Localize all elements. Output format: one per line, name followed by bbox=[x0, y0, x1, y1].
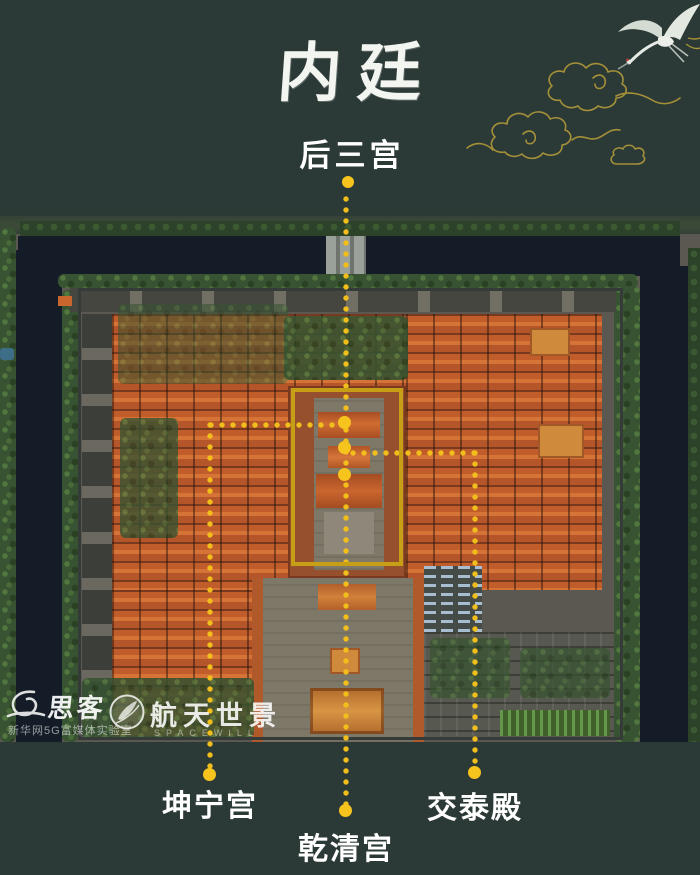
dot-jiaotaidian-marker bbox=[338, 441, 351, 454]
trees-west-inner bbox=[62, 290, 78, 742]
dot-top-label bbox=[342, 176, 354, 188]
city-east-outer bbox=[688, 248, 700, 742]
trees-west-outer bbox=[0, 228, 16, 742]
dot-qianqinggong-end bbox=[339, 804, 352, 817]
dotted-line-jiaotai-vertical bbox=[472, 450, 478, 768]
spacewill-watermark-subtitle: SPACEWILL bbox=[154, 728, 259, 738]
sike-watermark-text: 思客 bbox=[46, 688, 108, 725]
callout-label-jiaotaidian: 交泰殿 bbox=[385, 783, 565, 827]
photo-top-blend bbox=[0, 208, 700, 224]
moat-west bbox=[16, 250, 62, 742]
dot-kunninggong-marker bbox=[338, 416, 351, 429]
callout-label-qianqinggong: 乾清宫 bbox=[256, 824, 436, 868]
callout-label-kunninggong: 坤宁宫 bbox=[120, 781, 300, 825]
page-title: 内廷 bbox=[0, 22, 700, 114]
pool-west bbox=[0, 348, 14, 360]
spacewill-compass-logo-icon bbox=[108, 693, 146, 731]
dot-jiaotaidian-end bbox=[468, 766, 481, 779]
sike-swirl-logo-icon bbox=[4, 686, 46, 720]
dot-qianqinggong-marker bbox=[338, 468, 351, 481]
moat-east bbox=[640, 266, 688, 742]
callout-label-housangong: 后三宫 bbox=[0, 130, 700, 175]
dot-kunninggong-end bbox=[203, 768, 216, 781]
northwest-corner-turret bbox=[58, 296, 72, 306]
infographic-canvas: 内廷 后三宫 bbox=[0, 0, 700, 875]
